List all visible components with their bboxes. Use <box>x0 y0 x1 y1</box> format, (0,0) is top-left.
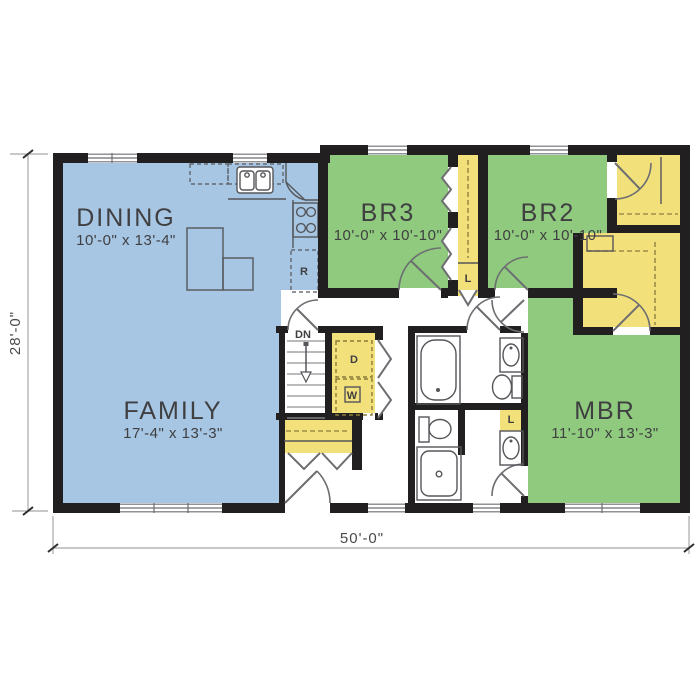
front-door-opening <box>285 503 330 513</box>
dimension-left: 28'-0" <box>7 150 48 515</box>
dryer-label: D <box>350 354 358 366</box>
window-dining <box>88 153 137 163</box>
window-hall-left <box>368 503 405 513</box>
floor-plan: R <box>0 0 700 700</box>
room-label-family: FAMILY <box>123 397 222 425</box>
window-br2 <box>530 145 568 155</box>
floor-plan-canvas: R <box>0 0 700 700</box>
window-mbr <box>565 503 640 513</box>
room-label-dining: DINING <box>76 204 176 232</box>
room-dims-dining: 10'-0" x 13'-4" <box>76 232 176 249</box>
room-label-br2: BR2 <box>521 199 576 227</box>
room-label-mbr: MBR <box>574 397 636 425</box>
window-hall-right <box>473 503 500 513</box>
room-dims-family: 17'-4" x 13'-3" <box>123 425 223 442</box>
room-dims-br2: 10'-0" x 10'-10" <box>494 227 603 244</box>
linen-hall-label: L <box>465 273 472 285</box>
window-kitchen <box>233 153 267 163</box>
room-dims-br3: 10'-0" x 10'-10" <box>334 227 443 244</box>
dimension-width: 50'-0" <box>340 530 384 547</box>
linen-bath-label: L <box>508 414 515 426</box>
window-family <box>120 503 222 513</box>
dimension-bottom: 50'-0" <box>48 516 694 554</box>
dimension-depth: 28'-0" <box>7 311 24 355</box>
refrigerator-label: R <box>300 266 308 278</box>
stairs-dn-label: DN <box>295 329 311 341</box>
room-dims-mbr: 11'-10" x 13'-3" <box>551 425 659 442</box>
closet-coat <box>283 420 352 453</box>
kitchen-sink <box>237 167 273 193</box>
washer-label: W <box>347 390 358 402</box>
room-label-br3: BR3 <box>361 199 416 227</box>
window-br3 <box>368 145 407 155</box>
